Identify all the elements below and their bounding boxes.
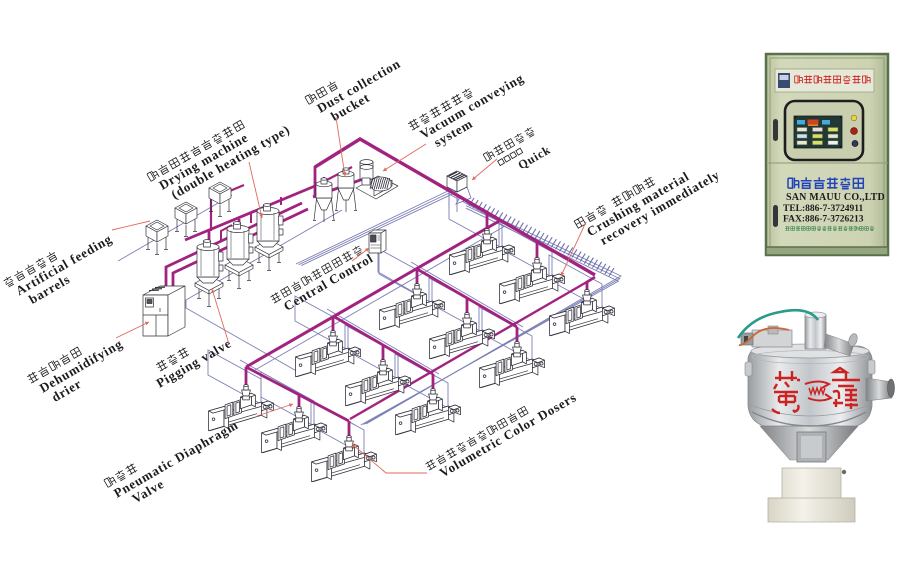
svg-text:FAX:886-7-3726213: FAX:886-7-3726213 (783, 215, 864, 225)
svg-text:SAN MAUU CO.,LTD: SAN MAUU CO.,LTD (786, 192, 885, 203)
svg-text:TEL:886-7-3724911: TEL:886-7-3724911 (783, 204, 863, 214)
